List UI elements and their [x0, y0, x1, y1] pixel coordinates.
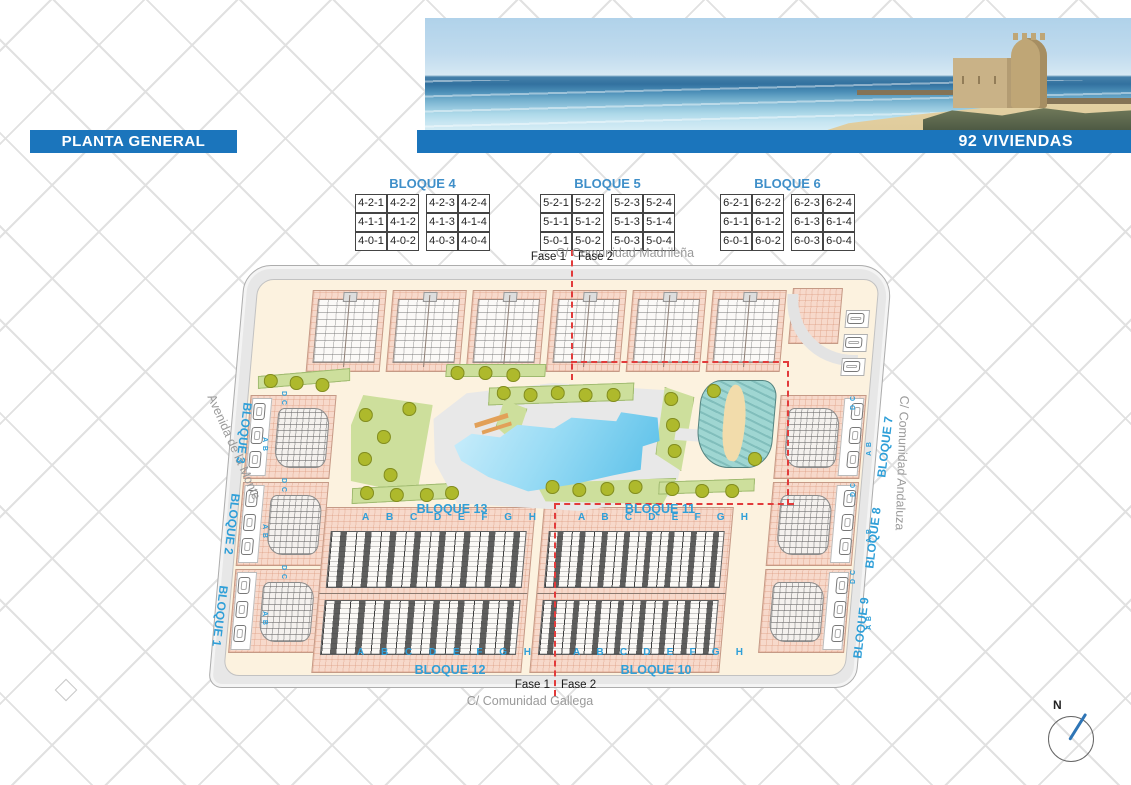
car-icon	[835, 577, 848, 594]
letter-row: ABCDEFGH	[357, 647, 531, 658]
unit-pair-label: D C	[850, 395, 857, 410]
unit-letter: G	[717, 512, 725, 523]
unit-letter: G	[499, 647, 507, 658]
unit-pair-label: A B	[261, 524, 268, 539]
car-icon	[237, 577, 250, 594]
unit-letter: F	[689, 647, 695, 658]
tree-icon	[478, 366, 493, 380]
ring-road	[208, 265, 893, 688]
unit-letter: F	[476, 647, 482, 658]
letter-row: ABCDEFGH	[578, 512, 748, 523]
unit-letter: A	[362, 512, 369, 523]
stair-core	[583, 292, 598, 302]
letter-row: ABCDEFGH	[362, 512, 536, 523]
building-bloque6-a	[626, 290, 707, 372]
street-label-bottom: C/ Comunidad Gallega	[420, 694, 640, 708]
unit-letter: H	[524, 647, 531, 658]
unit-pair-label: D C	[850, 569, 857, 584]
unit-letter: E	[672, 512, 679, 523]
building-bloque4-b	[386, 290, 467, 372]
car-icon	[848, 427, 861, 444]
building-bloque6-b	[706, 290, 787, 372]
unit-pair-label: A B	[866, 441, 873, 456]
unit-letter: B	[601, 512, 608, 523]
unit-letter: H	[529, 512, 536, 523]
tree-icon	[747, 452, 762, 466]
unit-letter: A	[357, 647, 364, 658]
unit-letter: D	[648, 512, 655, 523]
site-interior	[223, 279, 880, 676]
unit-pair-label: D C	[280, 565, 287, 580]
building-bloque5-b	[546, 290, 627, 372]
unit-letter: B	[596, 647, 603, 658]
car-icon	[839, 538, 852, 555]
tree-icon	[506, 368, 521, 382]
fase1-label-top: Fase 1	[490, 251, 566, 263]
unit-letter: B	[381, 647, 388, 658]
block-divider	[537, 593, 725, 594]
bloque12-label: BLOQUE 12	[415, 663, 486, 677]
street-label-top: C/ Comunidad Madrileña	[545, 246, 705, 260]
tree-icon	[450, 366, 465, 380]
stair-core	[663, 292, 678, 302]
unit-letter: C	[625, 512, 632, 523]
building-bloque5-a	[466, 290, 547, 372]
unit-pair-label: A B	[866, 528, 873, 543]
townhouse-row-bloque11	[544, 531, 725, 588]
unit-letter: E	[458, 512, 465, 523]
car-icon	[843, 361, 861, 372]
car-icon	[841, 514, 854, 531]
car-icon	[847, 313, 865, 324]
phase-line	[571, 361, 789, 363]
tree-icon	[419, 488, 434, 502]
unit-pair-label: A B	[261, 611, 268, 626]
car-icon	[846, 451, 859, 468]
phase-line	[787, 361, 789, 505]
unit-letter: H	[741, 512, 748, 523]
unit-pair-label: A B	[261, 437, 268, 452]
tree-icon	[289, 376, 304, 390]
unit-letter: G	[712, 647, 720, 658]
unit-pair-label: D C	[850, 482, 857, 497]
unit-letter: D	[429, 647, 436, 658]
stair-core	[743, 292, 758, 302]
phase-line	[554, 503, 556, 696]
car-icon	[235, 601, 248, 618]
tree-icon	[695, 484, 710, 498]
building-bloque4-a	[306, 290, 387, 372]
block-divider	[319, 593, 527, 594]
unit-letter: F	[694, 512, 700, 523]
unit-letter: E	[453, 647, 460, 658]
unit-letter: H	[736, 647, 743, 658]
car-icon	[833, 601, 846, 618]
tree-icon	[725, 484, 740, 498]
unit-letter: D	[643, 647, 650, 658]
unit-letter: A	[573, 647, 580, 658]
fase1-label-bottom: Fase 1	[477, 679, 550, 691]
unit-letter: E	[667, 647, 674, 658]
unit-letter: C	[410, 512, 417, 523]
entrance-drive	[781, 294, 863, 366]
unit-letter: G	[504, 512, 512, 523]
unit-letter: F	[481, 512, 487, 523]
north-label: N	[1053, 698, 1062, 712]
floor-plan	[273, 408, 330, 468]
floor-plan	[266, 495, 323, 555]
bloque10-label: BLOQUE 10	[621, 663, 692, 677]
unit-pair-label: D C	[280, 391, 287, 406]
car-icon	[252, 403, 265, 420]
stair-core	[423, 292, 438, 302]
unit-letter: A	[578, 512, 585, 523]
unit-letter: C	[620, 647, 627, 658]
stair-core	[503, 292, 518, 302]
unit-letter: C	[405, 647, 412, 658]
unit-pair-label: D C	[280, 478, 287, 493]
unit-letter: B	[386, 512, 393, 523]
site-plan-page: PLANTA GENERAL 92 VIVIENDAS BLOQUE 44-2-…	[0, 0, 1131, 785]
car-icon	[241, 538, 254, 555]
floor-plan	[768, 582, 825, 642]
floor-plan	[783, 408, 840, 468]
townhouse-row-bloque13	[326, 531, 527, 588]
fase2-label-top: Fase 2	[578, 251, 613, 263]
car-icon	[233, 625, 246, 642]
car-icon	[845, 337, 863, 348]
unit-pair-label: A B	[866, 615, 873, 630]
fase2-label-bottom: Fase 2	[561, 679, 596, 691]
site-skew-wrap	[0, 0, 1131, 785]
car-icon	[831, 625, 844, 642]
letter-row: ABCDEFGH	[573, 647, 743, 658]
car-icon	[243, 514, 256, 531]
stair-core	[343, 292, 358, 302]
unit-letter: D	[434, 512, 441, 523]
tree-icon	[315, 378, 330, 392]
